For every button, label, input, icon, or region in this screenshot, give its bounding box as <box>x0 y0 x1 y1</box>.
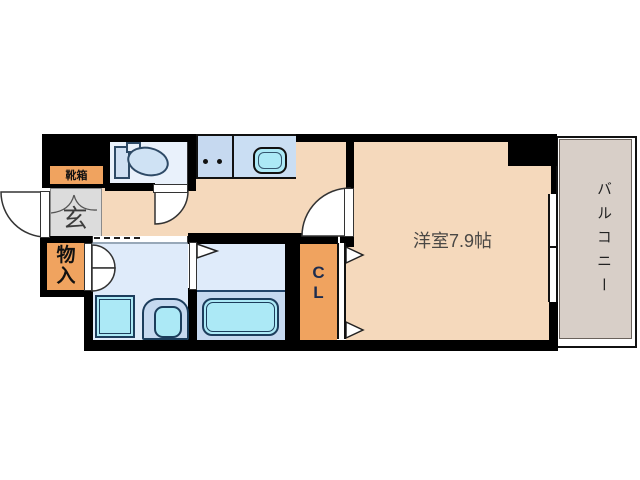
washing-machine-pan-rim <box>99 299 131 334</box>
kitchen-sink <box>253 147 287 174</box>
wall-room-right-upper <box>551 166 556 196</box>
entrance-door-leaf <box>40 191 50 238</box>
storage-label-char1: 物 <box>47 245 85 266</box>
shoe-box-label: 靴箱 <box>50 166 103 184</box>
wall-closet-left <box>285 240 300 341</box>
bathtub <box>202 298 279 336</box>
wall-bottom <box>84 340 558 351</box>
vanity-sink <box>142 298 189 340</box>
vanity-basin <box>154 306 182 338</box>
closet-label: C L <box>300 263 337 303</box>
toilet-door-leaf <box>153 184 188 193</box>
wall-bath-washroom <box>188 288 197 341</box>
stove-burner-dot <box>203 159 208 164</box>
stove-burner-dot <box>217 159 222 164</box>
wall-room-right-lower <box>549 300 558 341</box>
washing-machine-pan <box>95 295 135 338</box>
wall-top-right-notch <box>508 134 557 166</box>
bathtub-rim <box>206 302 275 332</box>
floor-plan: 靴箱 玄 物 入 C L 洋室7.9帖 バルコニー <box>0 0 640 480</box>
balcony-label: バルコニー <box>593 181 614 341</box>
wall-bath-closet-top <box>188 233 338 244</box>
storage-label-char2: 入 <box>47 266 85 287</box>
storage-door-panel <box>84 243 92 291</box>
bathroom-door-panel <box>189 242 197 290</box>
room-door-leaf <box>344 188 354 237</box>
wall-toilet-bottom <box>105 183 155 191</box>
closet-label-char1: C <box>300 263 337 283</box>
wall-washroom-left <box>84 288 93 348</box>
washroom-sliding-door-track <box>94 237 140 239</box>
entrance-label: 玄 <box>58 204 92 234</box>
closet-door-panel <box>337 243 346 339</box>
main-room-label: 洋室7.9帖 <box>354 227 551 253</box>
shoe-box-text: 靴箱 <box>66 167 88 183</box>
kitchen-sink-rim <box>258 152 282 169</box>
wall-toilet-right <box>188 134 196 191</box>
storage-label: 物 入 <box>47 245 85 287</box>
closet-label-char2: L <box>300 283 337 303</box>
wall-top <box>42 134 557 142</box>
wall-hall-room <box>346 134 354 190</box>
